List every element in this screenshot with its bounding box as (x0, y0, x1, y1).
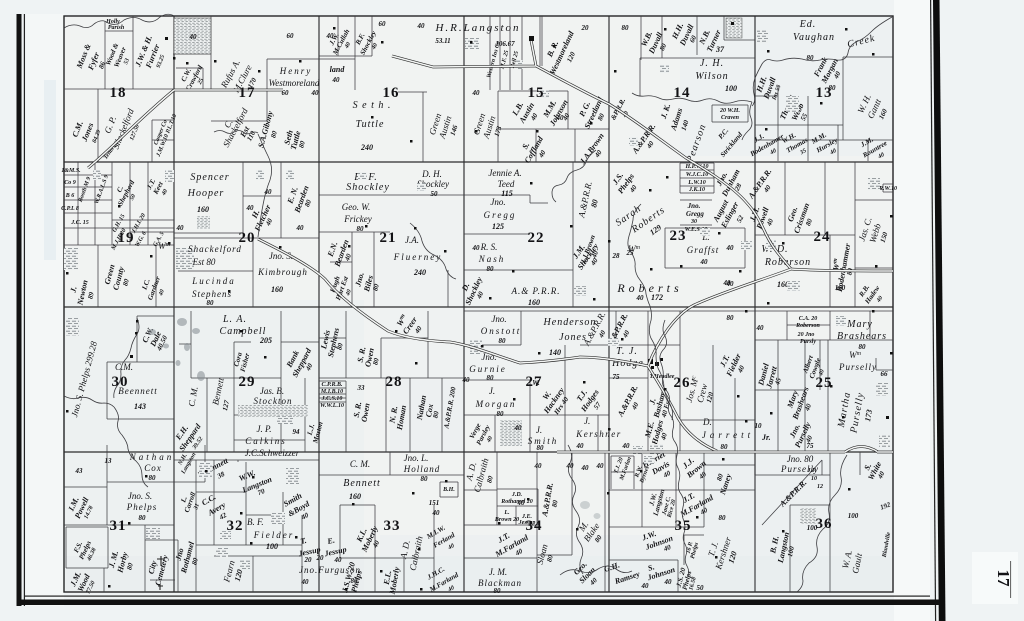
svg-text:80: 80 (499, 337, 507, 345)
svg-text:29: 29 (239, 374, 256, 390)
svg-text:1&M.S.: 1&M.S. (61, 168, 81, 174)
svg-text:Jno.: Jno. (491, 314, 506, 324)
svg-text:J.: J. (584, 416, 590, 426)
svg-text:160: 160 (271, 285, 283, 294)
svg-text:Fielder: Fielder (253, 530, 295, 540)
svg-text:40: 40 (664, 578, 673, 586)
svg-text:Cox: Cox (144, 463, 162, 473)
svg-text:Calkins: Calkins (245, 436, 287, 446)
svg-text:14: 14 (674, 85, 691, 101)
svg-text:J.: J. (536, 425, 542, 435)
svg-text:33: 33 (384, 518, 401, 534)
svg-text:R.W.10: R.W.10 (878, 186, 897, 192)
svg-text:160: 160 (835, 284, 846, 292)
svg-text:30: 30 (112, 374, 129, 390)
svg-text:151: 151 (429, 499, 440, 507)
svg-text:Jno. 80: Jno. 80 (787, 454, 814, 464)
svg-text:23: 23 (670, 228, 687, 244)
svg-text:Gurnie: Gurnie (469, 364, 507, 374)
svg-text:Wilson: Wilson (695, 71, 728, 82)
svg-text:172: 172 (651, 293, 663, 302)
svg-text:J.C.Schweizzer: J.C.Schweizzer (245, 448, 300, 458)
svg-text:J. P.: J. P. (256, 424, 271, 434)
svg-text:Parish: Parish (108, 25, 125, 31)
svg-text:40: 40 (417, 22, 426, 30)
svg-text:27: 27 (526, 374, 543, 390)
svg-text:40: 40 (246, 204, 255, 212)
svg-text:40: 40 (581, 464, 590, 472)
svg-text:35: 35 (675, 518, 692, 534)
svg-text:J.: J. (489, 386, 495, 396)
svg-text:40: 40 (514, 424, 523, 432)
svg-text:20: 20 (316, 554, 325, 562)
svg-text:20: 20 (581, 24, 590, 32)
svg-text:40: 40 (472, 244, 481, 252)
svg-text:Pursly: Pursly (800, 339, 816, 345)
svg-text:J.D.: J.D. (511, 492, 523, 498)
svg-text:140: 140 (549, 348, 561, 357)
svg-text:D.: D. (702, 417, 712, 427)
svg-text:40: 40 (326, 32, 335, 40)
svg-text:28: 28 (612, 252, 621, 260)
svg-text:Stephens: Stephens (192, 289, 232, 299)
svg-text:28: 28 (386, 374, 403, 390)
svg-text:18: 18 (110, 85, 127, 101)
svg-text:Geo. W.: Geo. W. (342, 202, 370, 212)
svg-text:Co 9: Co 9 (64, 180, 76, 186)
svg-text:Est 80: Est 80 (192, 257, 216, 267)
svg-text:Jas. B.: Jas. B. (260, 386, 284, 396)
svg-text:Craven: Craven (721, 115, 740, 121)
svg-text:40: 40 (311, 89, 320, 97)
svg-text:C. M.: C. M. (350, 459, 370, 469)
svg-text:Vaughan: Vaughan (793, 32, 835, 43)
svg-text:60: 60 (287, 32, 295, 40)
svg-text:53.11: 53.11 (435, 37, 450, 45)
svg-text:80: 80 (494, 587, 502, 595)
svg-text:160: 160 (528, 298, 540, 307)
svg-text:40: 40 (596, 462, 605, 470)
svg-text:Lucinda: Lucinda (191, 276, 236, 286)
svg-text:Brashears: Brashears (837, 331, 887, 342)
svg-text:80: 80 (207, 299, 215, 307)
svg-text:J.A.: J.A. (405, 235, 419, 245)
svg-text:40: 40 (462, 376, 471, 384)
svg-text:16: 16 (383, 85, 400, 101)
svg-text:Kershner: Kershner (575, 429, 622, 439)
svg-text:19: 19 (118, 230, 135, 246)
svg-text:land: land (330, 65, 346, 74)
svg-text:17: 17 (239, 85, 256, 101)
svg-text:C.P.R.B.: C.P.R.B. (322, 382, 343, 388)
svg-text:Gregg: Gregg (686, 210, 704, 218)
svg-text:13: 13 (105, 457, 113, 465)
svg-text:Henderson: Henderson (543, 317, 597, 328)
svg-text:L. A.: L. A. (222, 314, 247, 325)
svg-text:L.W.10: L.W.10 (687, 180, 706, 186)
svg-text:J.K.10: J.K.10 (688, 187, 705, 193)
svg-text:33: 33 (357, 384, 366, 392)
svg-text:10: 10 (755, 422, 763, 430)
svg-text:B. F.: B. F. (247, 517, 264, 527)
svg-text:Fluerney: Fluerney (393, 252, 442, 262)
svg-text:160: 160 (197, 205, 209, 214)
svg-text:100: 100 (848, 512, 859, 520)
svg-text:240: 240 (413, 268, 426, 277)
svg-text:80: 80 (497, 410, 505, 418)
svg-text:Gregg: Gregg (484, 210, 517, 220)
svg-text:40: 40 (332, 76, 341, 84)
svg-text:75: 75 (613, 373, 621, 381)
svg-text:T. J.: T. J. (616, 346, 638, 357)
svg-text:125: 125 (492, 222, 504, 231)
svg-text:80: 80 (719, 514, 727, 522)
svg-text:40: 40 (641, 582, 650, 590)
svg-text:10: 10 (811, 476, 817, 482)
svg-text:Jno. L.: Jno. L. (404, 453, 429, 463)
svg-text:J. H.: J. H. (700, 58, 724, 69)
svg-text:L.: L. (503, 510, 510, 516)
svg-text:40: 40 (556, 114, 565, 122)
svg-text:80: 80 (487, 374, 495, 382)
svg-text:B.H.: B.H. (442, 487, 455, 493)
svg-text:Ed.: Ed. (799, 19, 817, 30)
svg-text:80: 80 (721, 443, 729, 451)
svg-text:50: 50 (697, 584, 705, 592)
svg-text:R. S.: R. S. (480, 242, 498, 252)
svg-text:Hooper: Hooper (187, 188, 225, 199)
svg-text:Westmoreland: Westmoreland (269, 78, 320, 88)
svg-text:Phelps: Phelps (126, 502, 158, 512)
svg-text:Roberson: Roberson (795, 323, 820, 329)
svg-text:Mary: Mary (846, 319, 873, 330)
svg-text:40: 40 (566, 462, 575, 470)
svg-text:C.M.: C.M. (115, 362, 133, 372)
svg-text:Jno. S.: Jno. S. (128, 491, 152, 501)
svg-text:80: 80 (357, 225, 365, 233)
svg-text:C.P.L 8: C.P.L 8 (61, 206, 79, 212)
svg-text:20 Jno: 20 Jno (797, 332, 815, 338)
svg-text:40: 40 (636, 294, 645, 302)
svg-text:160: 160 (349, 492, 361, 501)
svg-text:80: 80 (622, 24, 630, 32)
svg-text:Jarrett: Jarrett (702, 430, 754, 440)
svg-text:75: 75 (807, 442, 815, 450)
svg-text:40: 40 (576, 442, 585, 450)
svg-text:Frickey: Frickey (343, 214, 371, 224)
svg-text:20 W.H.: 20 W.H. (719, 108, 740, 114)
svg-text:M.I.B.10: M.I.B.10 (320, 389, 343, 395)
svg-text:40: 40 (189, 33, 198, 41)
svg-text:21: 21 (380, 230, 397, 246)
svg-text:J.C.S.10: J.C.S.10 (321, 396, 343, 402)
svg-text:B 6: B 6 (65, 193, 75, 199)
svg-text:D. H.: D. H. (421, 169, 442, 179)
svg-text:100: 100 (725, 84, 737, 93)
svg-text:Bennett: Bennett (343, 478, 381, 489)
svg-text:40: 40 (334, 556, 343, 564)
svg-text:80: 80 (537, 444, 545, 452)
svg-text:Henry: Henry (279, 66, 313, 76)
svg-text:50: 50 (431, 190, 439, 198)
svg-text:22: 22 (528, 230, 545, 246)
svg-text:Purselly: Purselly (838, 362, 877, 372)
svg-text:30: 30 (690, 219, 697, 225)
svg-text:40: 40 (622, 442, 631, 450)
svg-text:Brown 20: Brown 20 (494, 517, 519, 523)
svg-text:100: 100 (266, 542, 278, 551)
svg-text:Spencer: Spencer (190, 172, 229, 183)
svg-text:Jennie A.: Jennie A. (488, 168, 521, 178)
svg-text:40: 40 (756, 324, 765, 332)
svg-text:40: 40 (296, 224, 305, 232)
svg-text:Shackelford: Shackelford (188, 244, 242, 254)
svg-text:40: 40 (176, 224, 185, 232)
svg-text:Jr.: Jr. (761, 433, 771, 442)
svg-text:Roberts: Roberts (616, 281, 682, 295)
svg-text:A.& P.R.R.: A.& P.R.R. (510, 286, 560, 296)
svg-text:J.P.: J.P. (807, 468, 817, 474)
svg-text:Onstott: Onstott (481, 326, 522, 336)
svg-text:S e t h .: S e t h . (353, 100, 392, 111)
svg-text:40: 40 (534, 462, 543, 470)
svg-text:Kimbrough: Kimbrough (257, 267, 308, 277)
svg-text:H.R.Langston: H.R.Langston (434, 22, 520, 34)
svg-text:80: 80 (727, 314, 735, 322)
svg-text:13: 13 (816, 85, 833, 101)
svg-text:60: 60 (379, 20, 387, 28)
svg-text:40: 40 (726, 280, 735, 288)
svg-text:25: 25 (816, 375, 833, 391)
svg-text:94: 94 (293, 428, 301, 436)
svg-text:12: 12 (817, 484, 823, 490)
svg-text:40: 40 (700, 258, 709, 266)
svg-text:66: 66 (881, 370, 889, 378)
svg-text:J.C. 15: J.C. 15 (70, 220, 89, 226)
svg-text:15: 15 (528, 85, 545, 101)
svg-text:W.J.C.10: W.J.C.10 (686, 172, 708, 178)
svg-text:Tuttle: Tuttle (356, 119, 385, 130)
svg-text:37: 37 (715, 45, 725, 54)
svg-text:Jno.: Jno. (490, 197, 505, 207)
svg-text:20: 20 (239, 230, 256, 246)
svg-text:Stockton: Stockton (254, 396, 293, 406)
svg-text:C.A. 20: C.A. 20 (799, 316, 818, 322)
svg-text:W.W.L.10: W.W.L.10 (320, 403, 344, 409)
svg-text:Nash: Nash (478, 254, 506, 264)
svg-text:240: 240 (360, 143, 373, 152)
svg-text:80: 80 (139, 514, 147, 522)
svg-text:43: 43 (75, 467, 84, 475)
svg-text:20: 20 (304, 556, 313, 564)
svg-text:80: 80 (149, 474, 157, 482)
svg-text:36: 36 (816, 516, 833, 532)
svg-text:Morgan: Morgan (475, 399, 517, 409)
svg-text:80: 80 (859, 343, 867, 351)
svg-text:205: 205 (259, 336, 272, 345)
svg-text:143: 143 (134, 402, 146, 411)
svg-text:Teed: Teed (498, 179, 515, 189)
svg-text:40: 40 (472, 89, 481, 97)
svg-text:J. M.: J. M. (489, 567, 507, 577)
svg-text:Jno.: Jno. (687, 202, 701, 210)
svg-text:32: 32 (227, 518, 244, 534)
svg-text:40: 40 (301, 578, 310, 586)
svg-text:80: 80 (487, 265, 495, 273)
svg-text:40: 40 (726, 244, 735, 252)
svg-text:24: 24 (814, 229, 831, 245)
svg-text:40: 40 (432, 509, 441, 517)
svg-text:Holland: Holland (403, 464, 441, 474)
svg-text:Graffst: Graffst (687, 245, 720, 255)
svg-text:40: 40 (517, 499, 526, 507)
svg-text:31: 31 (110, 518, 127, 534)
svg-text:26: 26 (674, 375, 691, 391)
svg-text:34: 34 (526, 518, 543, 534)
svg-text:80: 80 (421, 475, 429, 483)
svg-text:Shockley: Shockley (346, 182, 390, 193)
